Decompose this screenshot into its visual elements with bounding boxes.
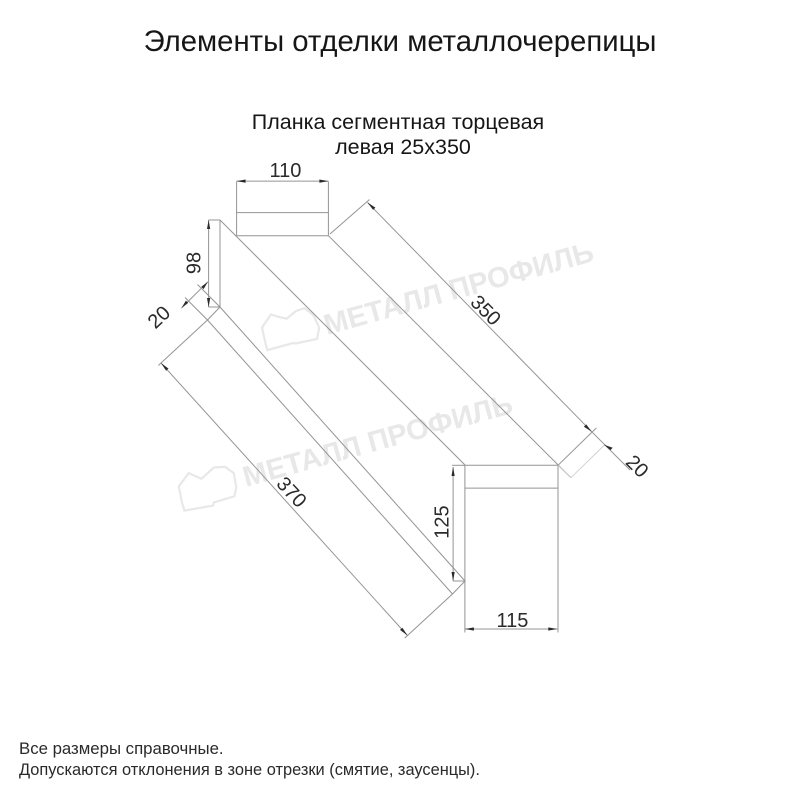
- svg-text:110: 110: [270, 160, 302, 182]
- svg-text:125: 125: [432, 505, 454, 538]
- svg-text:115: 115: [497, 610, 529, 632]
- svg-text:МЕТАЛЛ ПРОФИЛЬ: МЕТАЛЛ ПРОФИЛЬ: [239, 388, 516, 493]
- svg-text:20: 20: [621, 451, 652, 482]
- svg-text:МЕТАЛЛ ПРОФИЛЬ: МЕТАЛЛ ПРОФИЛЬ: [320, 236, 597, 341]
- svg-text:98: 98: [184, 252, 206, 274]
- svg-text:20: 20: [144, 302, 175, 333]
